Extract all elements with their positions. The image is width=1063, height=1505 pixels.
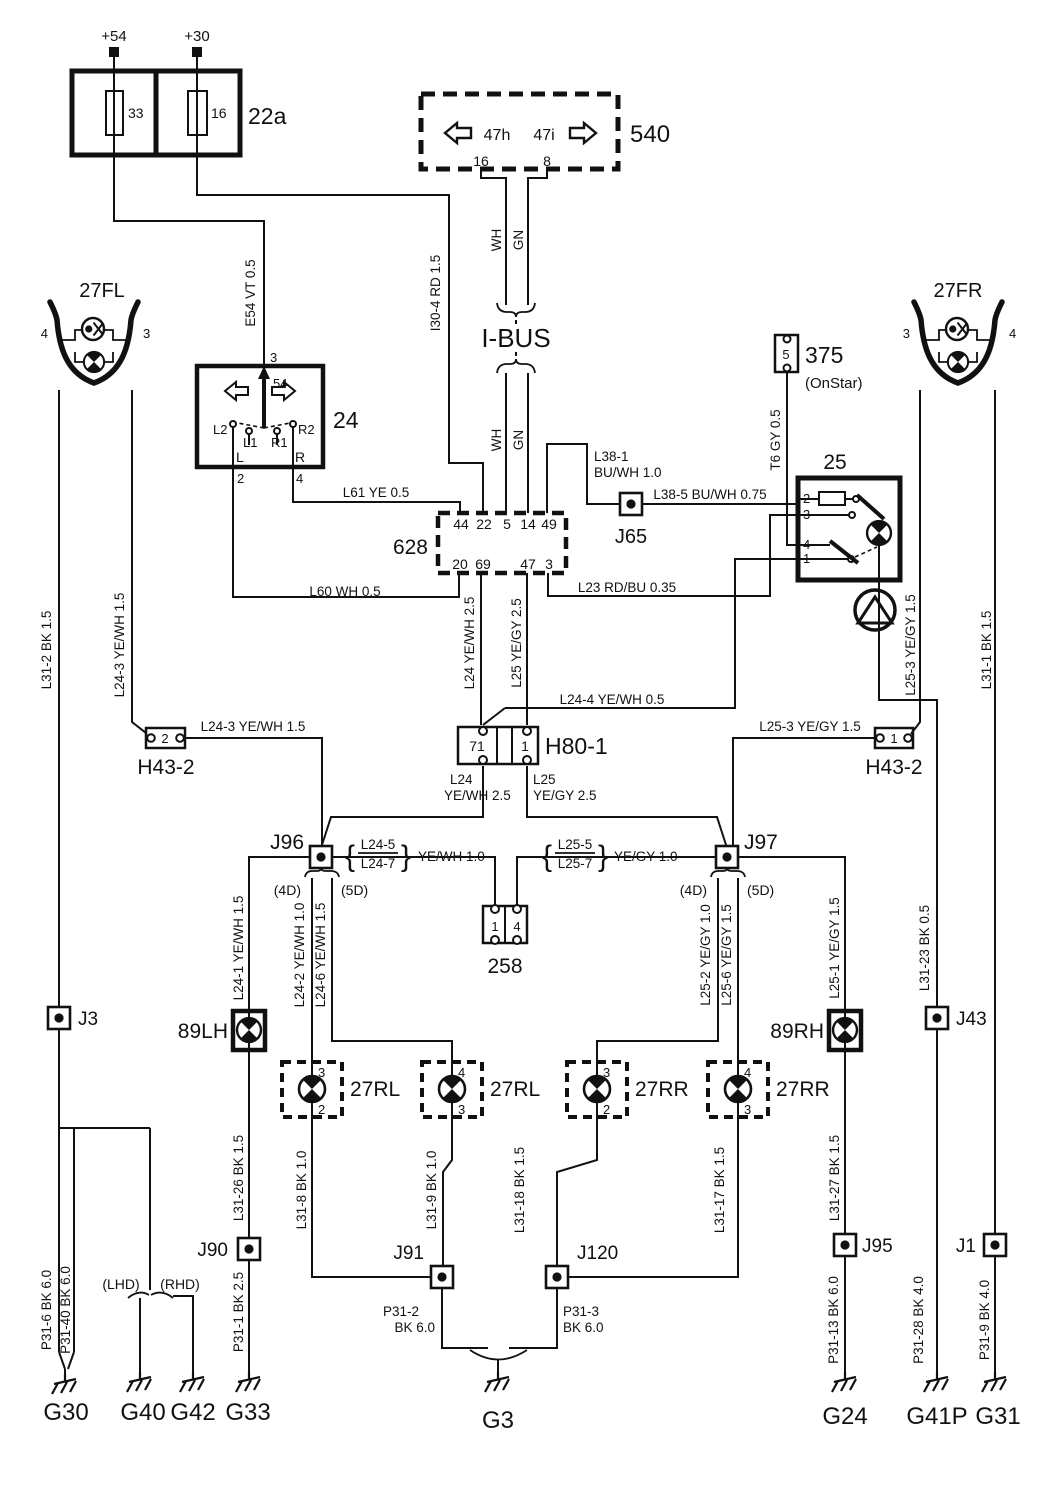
wire-label: YE/GY 2.5 xyxy=(533,788,597,803)
junction-j91 xyxy=(431,1266,453,1288)
arrow-left-icon xyxy=(225,382,248,400)
wire-label: T6 GY 0.5 xyxy=(768,409,783,470)
pin-number: 3 xyxy=(744,1102,751,1117)
component-id: 27RL xyxy=(490,1078,540,1101)
junction-id: J97 xyxy=(744,831,778,854)
pin-number: 8 xyxy=(543,153,551,169)
wire-label: L31-9 BK 1.0 xyxy=(424,1151,439,1230)
variant-label: (4D) xyxy=(274,882,301,898)
wire-label: L25-6 YE/GY 1.5 xyxy=(719,904,734,1006)
junction-j120 xyxy=(546,1266,568,1288)
wires-feed xyxy=(114,57,547,513)
variant-label: (5D) xyxy=(341,882,368,898)
junction-id: J3 xyxy=(78,1009,98,1030)
wire-label: YE/GY 1.0 xyxy=(614,849,678,864)
junction-j97 xyxy=(716,846,738,868)
pin-number: 20 xyxy=(452,556,468,572)
feed-label: +30 xyxy=(184,28,209,45)
wire-label: L25-5 xyxy=(558,837,593,852)
switch-25 xyxy=(798,478,900,580)
variant-label: (LHD) xyxy=(102,1276,139,1292)
pin-number: 1 xyxy=(890,731,897,746)
junction-j65 xyxy=(620,493,642,515)
wire-label: L25-3 YE/GY 1.5 xyxy=(903,594,918,696)
arrow-left-icon xyxy=(445,123,471,143)
wire-label: L24-3 YE/WH 1.5 xyxy=(112,593,127,698)
component-id: 540 xyxy=(630,121,670,148)
pin-number: 3 xyxy=(603,1065,610,1080)
pin-number: 3 xyxy=(903,326,910,341)
ground-id: G41P xyxy=(906,1403,967,1430)
component-id: 258 xyxy=(487,955,522,978)
wire-label: L24 xyxy=(450,772,473,787)
lamp-27fl xyxy=(50,302,138,383)
wire-label: P31-40 BK 6.0 xyxy=(58,1266,73,1354)
component-id: 27RR xyxy=(776,1078,830,1101)
wire-label: L60 WH 0.5 xyxy=(309,584,380,599)
wire-label: L31-1 BK 1.5 xyxy=(979,611,994,690)
pin-number: 14 xyxy=(520,516,536,532)
pin-number: 4 xyxy=(803,537,810,552)
junction-j96 xyxy=(310,846,332,868)
terminal-30 xyxy=(192,47,202,57)
ground-id: G30 xyxy=(43,1399,88,1426)
brace: { xyxy=(345,840,355,873)
fuse-number: 16 xyxy=(211,105,227,121)
component-id: 27RL xyxy=(350,1078,400,1101)
hazard-triangle-icon xyxy=(855,590,895,630)
junction-id: J96 xyxy=(270,831,304,854)
pin-number: 4 xyxy=(513,919,520,934)
wires-ground-funnels xyxy=(59,1293,527,1374)
wire-label: L38-1 xyxy=(594,449,629,464)
signal-label: 47h xyxy=(484,127,511,144)
wire-label: L38-5 BU/WH 0.75 xyxy=(653,487,766,502)
pin-number: 22 xyxy=(476,516,492,532)
wire-label: L31-18 BK 1.5 xyxy=(512,1147,527,1233)
ground-g31-icon xyxy=(982,1372,1006,1392)
wire-label: BU/WH 1.0 xyxy=(594,465,662,480)
wire-label: L31-2 BK 1.5 xyxy=(39,611,54,690)
pin-number: 4 xyxy=(1009,326,1016,341)
wiring-diagram: +54 +30 33 16 22a 47h 47i 16 8 540 I-BUS… xyxy=(0,0,1063,1500)
wire-label: BK 6.0 xyxy=(563,1320,604,1335)
junction-id: J120 xyxy=(577,1243,618,1264)
pin-number: 4 xyxy=(744,1065,751,1080)
component-id: 27FL xyxy=(79,280,125,302)
junction-id: J91 xyxy=(393,1243,424,1264)
pin-number: 5 xyxy=(503,516,511,532)
pin-number: 3 xyxy=(803,507,810,522)
bulb-icon xyxy=(84,352,104,372)
component-id: 89LH xyxy=(178,1020,228,1043)
fusebox-22a xyxy=(72,47,240,155)
variant-label: (4D) xyxy=(680,882,707,898)
pin-number: 3 xyxy=(143,326,150,341)
variant-label: (5D) xyxy=(747,882,774,898)
wire-label: L31-23 BK 0.5 xyxy=(917,905,932,991)
wire-label: L31-8 BK 1.0 xyxy=(294,1151,309,1230)
junction-id: J43 xyxy=(956,1009,987,1030)
wire-label: L25-2 YE/GY 1.0 xyxy=(698,904,713,1006)
wire-label: BK 6.0 xyxy=(394,1320,435,1335)
pin-number: 69 xyxy=(475,556,491,572)
side-label: R xyxy=(295,449,305,465)
component-id: 27FR xyxy=(934,280,983,302)
wire-label: GN xyxy=(511,230,526,250)
resistor-icon xyxy=(819,492,845,505)
brace: } xyxy=(401,840,411,873)
junction-j43 xyxy=(926,1007,948,1029)
pin-number: 44 xyxy=(453,516,469,532)
ground-g24-icon xyxy=(832,1372,856,1392)
variant-label: (RHD) xyxy=(160,1276,200,1292)
signal-label: 47i xyxy=(533,127,554,144)
junction-j95 xyxy=(834,1234,856,1256)
ground-id: G31 xyxy=(975,1403,1020,1430)
component-id: 628 xyxy=(393,536,428,559)
junction-id: J95 xyxy=(862,1236,893,1257)
wires-rear-lamps xyxy=(312,878,738,1372)
pin-number: 3 xyxy=(545,556,553,572)
pin-number: 2 xyxy=(237,471,244,486)
brace: } xyxy=(598,840,608,873)
terminal-54 xyxy=(109,47,119,57)
indicator-bulb-icon xyxy=(82,318,104,340)
pin-number: 3 xyxy=(318,1065,325,1080)
junction-id: J1 xyxy=(956,1236,976,1257)
wire-label: WH xyxy=(489,429,504,452)
wire-label: P31-6 BK 6.0 xyxy=(39,1270,54,1350)
component-id: 89RH xyxy=(770,1020,824,1043)
pin-number: 16 xyxy=(473,153,489,169)
wire-label: L31-17 BK 1.5 xyxy=(712,1147,727,1233)
pin-number: 1 xyxy=(803,551,810,566)
side-label: L xyxy=(236,449,244,465)
wire-label: YE/WH 2.5 xyxy=(444,788,511,803)
wires-distribution xyxy=(59,390,995,1372)
bulb-icon xyxy=(867,521,891,545)
wire-label: P31-28 BK 4.0 xyxy=(911,1276,926,1364)
fuse-number: 33 xyxy=(128,105,144,121)
module-540 xyxy=(421,94,618,169)
component-id: 27RR xyxy=(635,1078,689,1101)
wire-label: WH xyxy=(489,229,504,252)
pin-number: 2 xyxy=(803,491,810,506)
ground-id: G3 xyxy=(482,1407,514,1434)
pin-number: 5 xyxy=(782,347,789,362)
bulb-icon xyxy=(237,1018,261,1042)
junction-j90 xyxy=(238,1238,260,1260)
pin-number: 71 xyxy=(469,738,485,754)
pin-number: 49 xyxy=(541,516,557,532)
ground-g30-icon xyxy=(52,1374,76,1394)
ground-g3-icon xyxy=(485,1372,509,1392)
wire-label: L24-7 xyxy=(361,856,396,871)
wire-label: L24-4 YE/WH 0.5 xyxy=(560,692,665,707)
wire-label: L24-6 YE/WH 1.5 xyxy=(313,903,328,1008)
wire-label: P31-3 xyxy=(563,1304,599,1319)
wire-label: L25-3 YE/GY 1.5 xyxy=(759,719,861,734)
arrow-right-icon xyxy=(570,123,596,143)
bulb-icon xyxy=(948,352,968,372)
pin-number: 4 xyxy=(41,326,48,341)
junction-id: J90 xyxy=(197,1240,228,1261)
bulb-icon xyxy=(833,1018,857,1042)
wire-label: GN xyxy=(511,430,526,450)
component-id: H43-2 xyxy=(865,756,922,779)
contact-label: L1 xyxy=(243,435,257,450)
component-id: 375 xyxy=(805,342,843,368)
pin-number: 2 xyxy=(603,1102,610,1117)
wire-label: L23 RD/BU 0.35 xyxy=(578,580,676,595)
wire-label: L25-1 YE/GY 1.5 xyxy=(827,897,842,999)
contact-label: L2 xyxy=(213,422,227,437)
ground-id: G42 xyxy=(170,1399,215,1426)
ground-g33-icon xyxy=(236,1372,260,1392)
lamp-27fr xyxy=(914,302,1002,383)
pin-number: 1 xyxy=(521,738,529,754)
feed-label: +54 xyxy=(101,28,126,45)
pin-number: 3 xyxy=(270,350,277,365)
wire-label: L25-7 xyxy=(558,856,593,871)
junction-j3 xyxy=(48,1007,70,1029)
wire-label: YE/WH 1.0 xyxy=(418,849,485,864)
wire-label: L24-1 YE/WH 1.5 xyxy=(231,896,246,1001)
wire-label: L24-3 YE/WH 1.5 xyxy=(201,719,306,734)
pin-number: 2 xyxy=(161,731,168,746)
wire-label: L24-2 YE/WH 1.0 xyxy=(292,903,307,1008)
wire-label: L25 xyxy=(533,772,556,787)
wire-label: L25 YE/GY 2.5 xyxy=(509,598,524,688)
ground-id: G33 xyxy=(225,1399,270,1426)
contact-label: R1 xyxy=(271,435,288,450)
contact-label: R2 xyxy=(298,422,315,437)
pin-number: 2 xyxy=(318,1102,325,1117)
component-id: 24 xyxy=(333,407,359,433)
wire-label: P31-1 BK 2.5 xyxy=(231,1272,246,1352)
pin-number: 1 xyxy=(491,919,498,934)
wire-label: P31-2 xyxy=(383,1304,419,1319)
ground-id: G40 xyxy=(120,1399,165,1426)
ground-id: G24 xyxy=(822,1403,867,1430)
brace: { xyxy=(542,840,552,873)
component-id: 25 xyxy=(823,451,846,474)
component-id: H80-1 xyxy=(545,733,608,759)
wire-label: L24-5 xyxy=(361,837,396,852)
wire-label: P31-13 BK 6.0 xyxy=(826,1276,841,1364)
pin-number: 4 xyxy=(296,471,303,486)
terminal-label: 54 xyxy=(273,376,287,391)
wire-label: L31-27 BK 1.5 xyxy=(827,1135,842,1221)
component-id: 22a xyxy=(248,103,287,129)
wire-label: P31-9 BK 4.0 xyxy=(977,1280,992,1360)
indicator-bulb-icon xyxy=(946,318,968,340)
wire-label: L31-26 BK 1.5 xyxy=(231,1135,246,1221)
pin-number: 4 xyxy=(458,1065,465,1080)
component-sub: (OnStar) xyxy=(805,375,863,392)
wire-label: E54 VT 0.5 xyxy=(243,259,258,326)
junction-id: J65 xyxy=(615,526,647,548)
wire-label: L24 YE/WH 2.5 xyxy=(462,597,477,690)
pin-number: 47 xyxy=(520,556,536,572)
component-id: H43-2 xyxy=(137,756,194,779)
wire-label: L61 YE 0.5 xyxy=(343,485,410,500)
ground-g40-icon xyxy=(127,1372,151,1392)
junction-j1 xyxy=(984,1234,1006,1256)
pin-number: 3 xyxy=(458,1102,465,1117)
ground-g42-icon xyxy=(180,1372,204,1392)
bus-label: I-BUS xyxy=(481,323,550,353)
ground-g41p-icon xyxy=(924,1372,948,1392)
wire-label: I30-4 RD 1.5 xyxy=(428,255,443,332)
